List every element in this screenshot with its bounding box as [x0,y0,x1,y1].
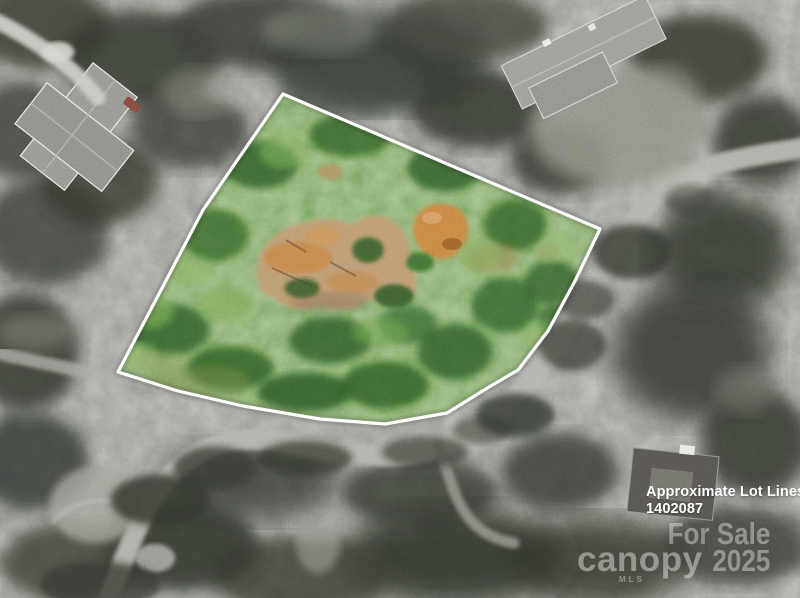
canopy-wordmark: canopy [577,540,703,579]
canopy-mls-logo: canopy MLS [577,544,703,585]
aerial-photo: Approximate Lot Lines 1402087 For Sale 2… [0,0,800,598]
lot-lines-label-line1: Approximate Lot Lines [646,484,800,501]
lot-lines-label: Approximate Lot Lines 1402087 [646,484,800,518]
